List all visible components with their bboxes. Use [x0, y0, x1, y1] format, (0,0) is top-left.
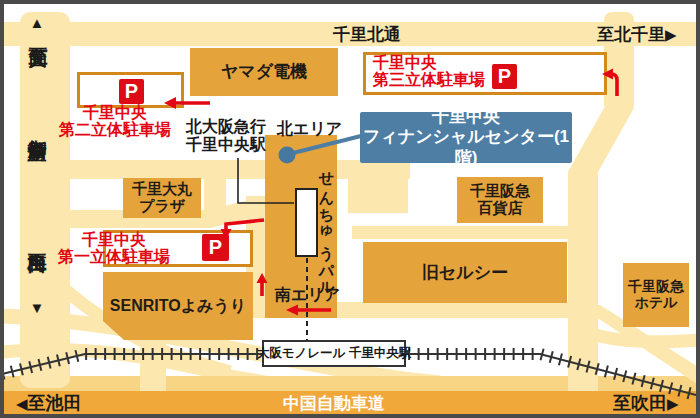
- building-former-celcy: 旧セルシー: [363, 242, 567, 303]
- direction-ikeda: ◀至池田: [16, 394, 82, 414]
- down-arrow-icon: ▼: [26, 300, 48, 317]
- direction-text: 至北千里: [597, 25, 665, 44]
- parking2-line2: 第二立体駐車場: [50, 122, 180, 139]
- building-label: 千里阪急: [470, 183, 530, 200]
- north-area-label: 北エリア: [277, 120, 342, 138]
- parking-icon: P: [202, 234, 229, 261]
- financial-center-line1: 千里中央: [432, 107, 500, 127]
- direction-umeda: 至梅田: [26, 238, 47, 241]
- station-line1: 北大阪急行: [180, 118, 272, 136]
- up-arrow-icon: ▲: [26, 15, 48, 32]
- building-label: ホテル: [635, 295, 678, 311]
- parking2-line1: 千里中央: [50, 105, 180, 122]
- parking3-line1: 千里中央: [373, 55, 485, 72]
- south-area-label: 南エリア: [275, 286, 340, 304]
- left-arrow-icon: ◀: [16, 395, 28, 412]
- building-daimaru-plaza: 千里大丸 プラザ: [123, 178, 201, 218]
- building-senrito-yomiuri: SENRITOよみうり: [103, 272, 253, 340]
- direction-suita: 至吹田▶: [613, 394, 679, 414]
- road-label-shin-midosuji: 新御堂筋: [26, 124, 47, 128]
- station-platform: [295, 188, 318, 257]
- financial-center-callout: 千里中央 フィナンシャルセンター(1階): [360, 112, 572, 163]
- direction-kita-senri: 至北千里▶: [597, 26, 677, 45]
- parking-icon: P: [119, 79, 144, 104]
- monorail-station-label: 大阪モノレール 千里中央駅: [262, 340, 406, 367]
- parking1-line1: 千里中央: [48, 232, 180, 249]
- parking3-line2: 第三立体駐車場: [373, 72, 485, 89]
- building-label: 千里阪急: [628, 279, 684, 295]
- building-label: 千里大丸: [132, 181, 192, 198]
- direction-text: 至吹田: [613, 393, 667, 413]
- senchu-pal-label: せんちゅうパル: [318, 162, 335, 289]
- direction-minoo: 至箕面: [27, 32, 48, 35]
- direction-text: 至池田: [28, 393, 82, 413]
- arrow-to-parking3: [611, 74, 617, 96]
- building-hankyu-hotel: 千里阪急 ホテル: [623, 263, 689, 327]
- road-label-senri-kitadori: 千里北通: [333, 26, 401, 45]
- parking1-label: 千里中央 第一立体駐車場: [48, 232, 180, 266]
- right-arrow-icon: ▶: [665, 26, 677, 43]
- senri-chuo-area-map: ヤマダ電機 千里大丸 プラザ SENRITOよみうり 千里阪急 百貨店 旧セルシ…: [0, 0, 700, 418]
- building-label: プラザ: [139, 198, 185, 215]
- financial-center-line2: フィナンシャルセンター(1階): [360, 127, 572, 167]
- building-label: 百貨店: [478, 200, 523, 217]
- kita-osaka-station-label: 北大阪急行 千里中央駅: [180, 118, 272, 153]
- right-arrow-icon: ▶: [667, 395, 679, 412]
- building-label: ヤマダ電機: [221, 62, 307, 81]
- building-yamada-denki: ヤマダ電機: [190, 48, 338, 96]
- parking-icon: P: [492, 64, 517, 89]
- building-label: 旧セルシー: [422, 263, 508, 282]
- monorail-station-text: 大阪モノレール 千里中央駅: [257, 345, 412, 362]
- p-letter: P: [498, 65, 511, 88]
- p-letter: P: [209, 236, 222, 259]
- road-label-chugoku-expressway: 中国自動車道: [283, 395, 385, 414]
- station-line2: 千里中央駅: [180, 136, 272, 154]
- parking1-line2: 第一立体駐車場: [48, 249, 180, 266]
- parking2-label: 千里中央 第二立体駐車場: [50, 105, 180, 139]
- p-letter: P: [125, 80, 138, 103]
- building-label: SENRITOよみうり: [110, 297, 246, 315]
- building-hankyu-department: 千里阪急 百貨店: [457, 177, 543, 223]
- parking3-label: 千里中央 第三立体駐車場: [373, 55, 485, 89]
- frontage-road: [4, 376, 696, 391]
